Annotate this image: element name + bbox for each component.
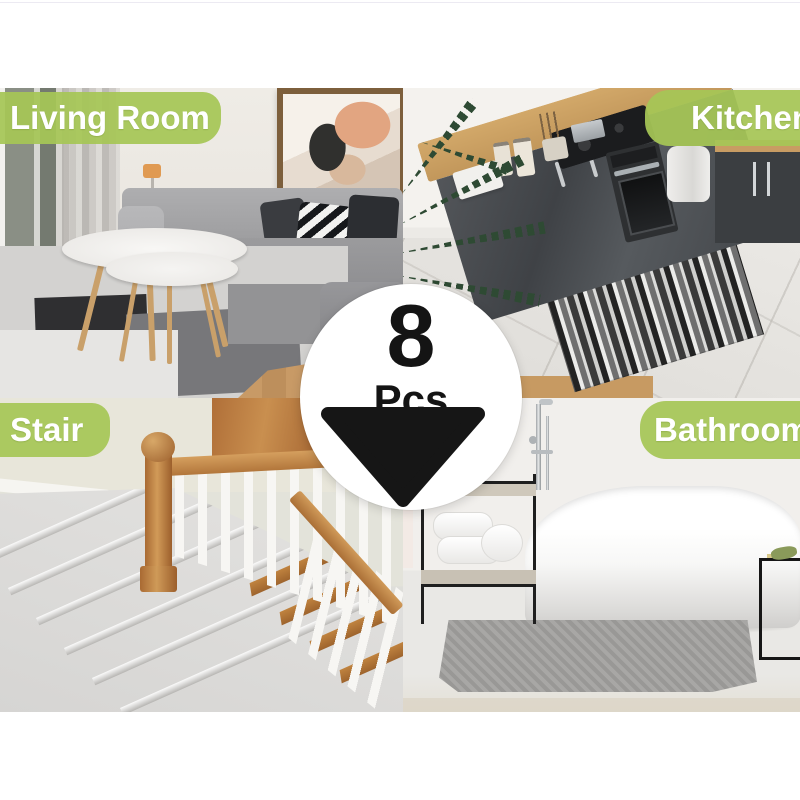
- wall-art: [277, 88, 403, 197]
- palm-frond: [403, 220, 546, 261]
- cabinet-handle: [753, 162, 756, 196]
- gray-bath-rug: [439, 620, 757, 692]
- label-kitchen-text: Kitchen: [691, 99, 800, 137]
- label-bathroom: Bathroom: [640, 401, 800, 459]
- bench-leg: [533, 474, 536, 624]
- table-leg: [167, 284, 172, 364]
- label-stair-text: Stair: [10, 411, 83, 449]
- label-bathroom-text: Bathroom: [654, 411, 800, 449]
- top-edge-sliver: [0, 2, 800, 3]
- black-side-table: [759, 558, 800, 660]
- floor-lamp-shade: [143, 164, 161, 178]
- product-collage-image: Living Room Kitchen Stair Bathroom 8 Pcs: [0, 0, 800, 800]
- cabinet-handle: [767, 162, 770, 196]
- faucet-pipe: [536, 404, 541, 490]
- black-pillow: [346, 194, 399, 243]
- palm-frond: [403, 153, 526, 231]
- faucet-spout: [531, 450, 553, 454]
- right-cabinet: [715, 140, 800, 243]
- room-collage: Living Room Kitchen Stair Bathroom 8 Pcs: [0, 88, 800, 712]
- newel-post-cap: [141, 432, 175, 462]
- floor-edge-strip: [403, 698, 800, 712]
- bench-lower-shelf: [421, 570, 536, 584]
- trash-bin: [667, 146, 710, 202]
- newel-post-base: [140, 566, 177, 592]
- label-kitchen: Kitchen: [645, 90, 800, 146]
- bench-frame: [421, 584, 536, 587]
- faucet-handle: [529, 436, 537, 444]
- rolled-towel: [481, 524, 523, 562]
- corner-pad-triangle-icon: [315, 406, 491, 508]
- label-living-room: Living Room: [0, 92, 221, 144]
- label-stair: Stair: [0, 403, 110, 457]
- badge-count: 8: [387, 294, 436, 378]
- label-living-room-text: Living Room: [10, 99, 210, 137]
- coffee-table-small: [106, 252, 238, 286]
- piece-count-badge: 8 Pcs: [300, 284, 522, 510]
- faucet-top: [539, 399, 553, 405]
